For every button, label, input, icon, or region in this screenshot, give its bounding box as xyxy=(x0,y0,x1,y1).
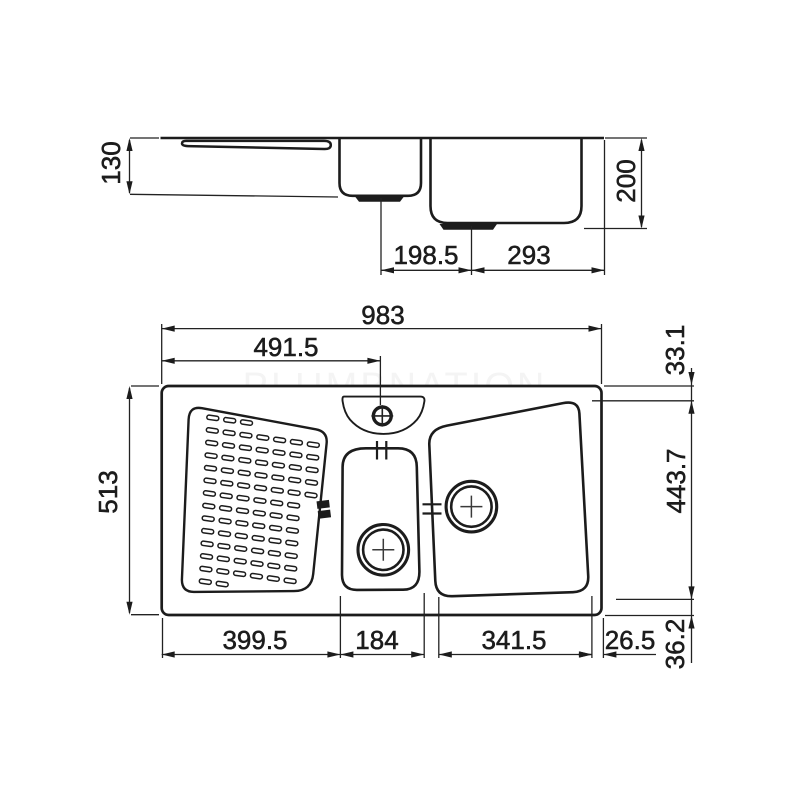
svg-text:130: 130 xyxy=(96,141,126,184)
svg-text:200: 200 xyxy=(611,159,641,202)
svg-text:491.5: 491.5 xyxy=(253,332,318,362)
svg-text:293: 293 xyxy=(507,240,550,270)
svg-text:443.7: 443.7 xyxy=(661,448,691,513)
svg-text:198.5: 198.5 xyxy=(393,240,458,270)
svg-text:36.2: 36.2 xyxy=(660,619,690,670)
svg-text:983: 983 xyxy=(361,300,404,330)
svg-text:341.5: 341.5 xyxy=(481,625,546,655)
svg-text:26.5: 26.5 xyxy=(605,625,656,655)
svg-text:399.5: 399.5 xyxy=(222,625,287,655)
svg-text:513: 513 xyxy=(93,470,123,513)
svg-text:184: 184 xyxy=(355,625,398,655)
svg-text:33.1: 33.1 xyxy=(660,325,690,376)
